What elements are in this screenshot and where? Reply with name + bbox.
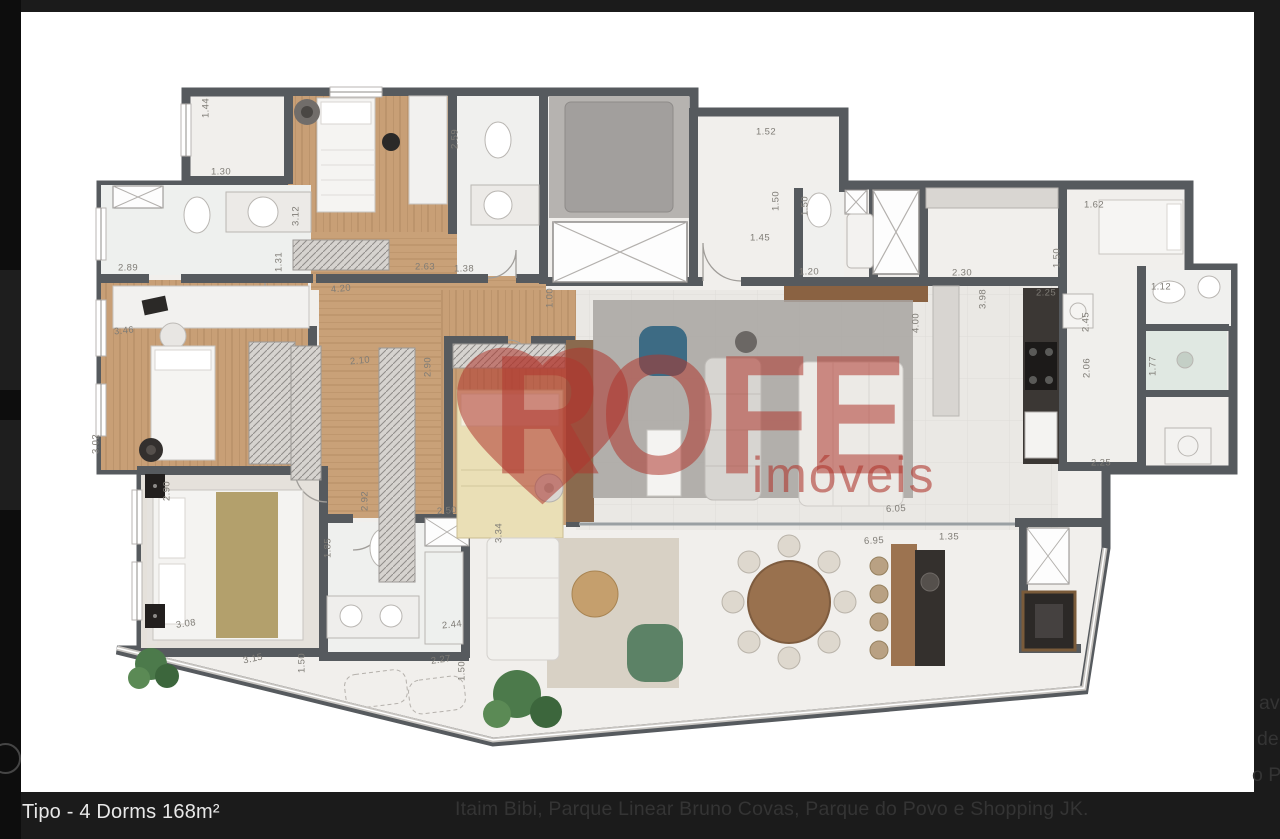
background-text-fragment: o P	[1252, 764, 1280, 787]
living-room-furniture	[593, 300, 913, 506]
background-page-text: Itaim Bibi, Parque Linear Bruno Covas, P…	[455, 798, 1089, 821]
maid-room-furniture	[1099, 200, 1183, 254]
image-caption: Tipo - 4 Dorms 168m²	[22, 801, 220, 824]
floor-plan-svg	[21, 12, 1254, 792]
bedroom-3-furniture	[145, 474, 303, 644]
background-text-fragment: de	[1257, 728, 1279, 751]
previous-image-fragment	[0, 270, 21, 390]
previous-image-fragment	[0, 420, 21, 510]
floor-plan-image[interactable]	[21, 12, 1254, 792]
background-text-fragment: av	[1259, 692, 1280, 715]
previous-image-strip[interactable]	[0, 0, 21, 839]
carousel-stage: 1.441.302.893.463.022.903.083.151.503.12…	[0, 0, 1280, 839]
